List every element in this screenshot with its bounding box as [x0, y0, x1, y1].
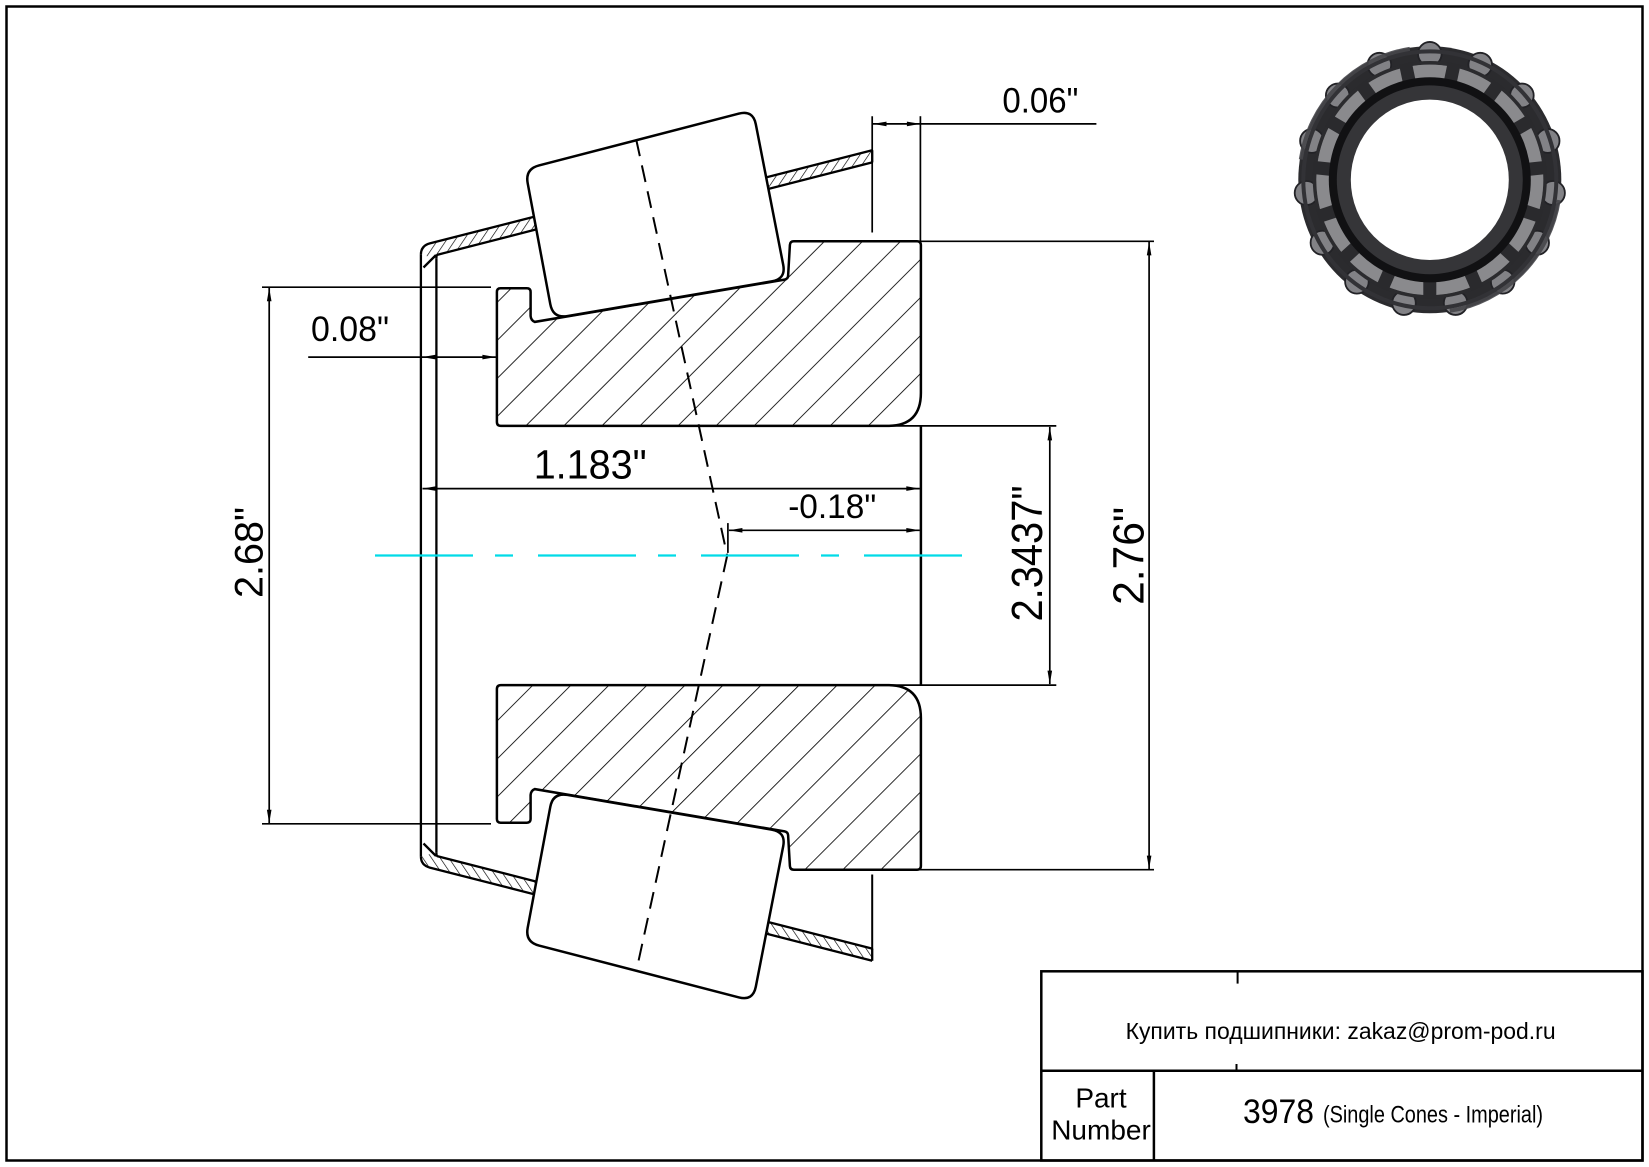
svg-text:Купить подшипники: zakaz@prom-: Купить подшипники: zakaz@prom-pod.ru — [1126, 1018, 1556, 1044]
svg-text:2.3437": 2.3437" — [1003, 486, 1052, 622]
svg-text:0.08": 0.08" — [311, 310, 389, 349]
svg-text:1.183": 1.183" — [534, 442, 647, 488]
svg-text:Number: Number — [1051, 1114, 1151, 1145]
svg-text:(Single Cones - Imperial): (Single Cones - Imperial) — [1323, 1102, 1543, 1129]
svg-text:2.68": 2.68" — [228, 507, 272, 598]
svg-text:Part: Part — [1075, 1083, 1127, 1114]
svg-text:3978: 3978 — [1243, 1093, 1314, 1131]
svg-text:0.06": 0.06" — [1002, 82, 1078, 121]
svg-text:-0.18": -0.18" — [788, 488, 876, 526]
svg-text:2.76": 2.76" — [1105, 507, 1154, 605]
